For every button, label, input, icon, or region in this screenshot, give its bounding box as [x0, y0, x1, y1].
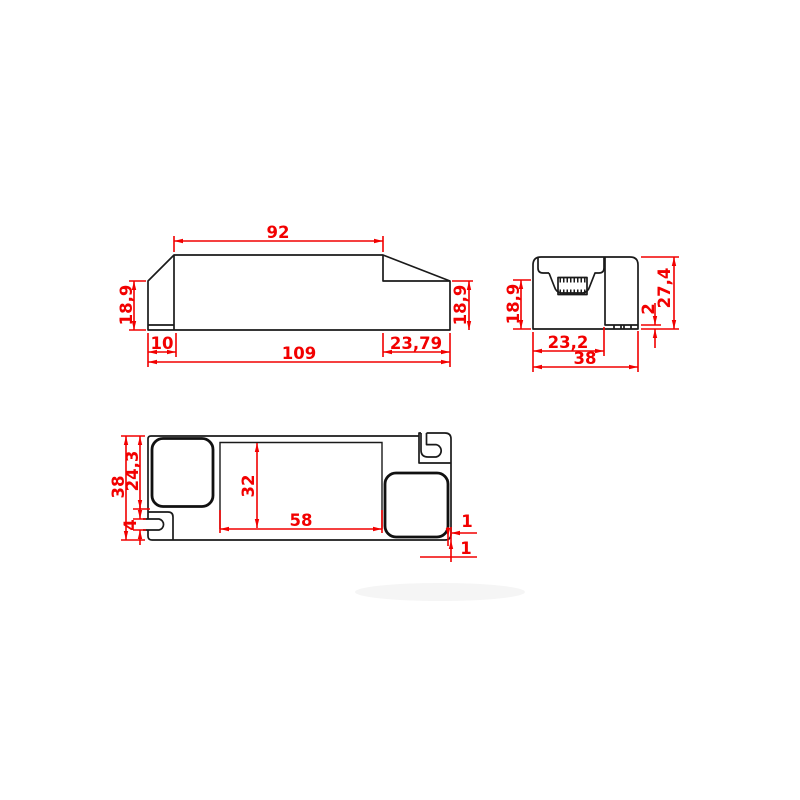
dim-left-tab: 10 — [148, 333, 176, 357]
side-view: 92 109 10 23,79 18,9 — [117, 223, 473, 367]
terminal-cover-left — [152, 439, 213, 507]
dim-label-18-9-right: 18,9 — [451, 285, 470, 326]
dim-label-10: 10 — [151, 334, 174, 353]
terminal-cover-right — [385, 473, 448, 537]
end-view: 18,9 23,2 38 27,4 2 — [504, 257, 679, 372]
dim-label-24-3: 24,3 — [123, 451, 142, 492]
end-view-outline — [533, 257, 638, 329]
dim-top-width: 92 — [174, 223, 383, 252]
side-view-outline — [148, 255, 450, 330]
dim-right-height: 18,9 — [451, 281, 473, 330]
dim-right-step: 23,79 — [383, 333, 450, 357]
paper-smudge — [355, 583, 525, 601]
dim-label-92: 92 — [267, 223, 290, 242]
dim-slot-width: 4 — [121, 506, 146, 545]
dim-window-width: 58 — [220, 510, 382, 533]
dim-foot-height: 2 — [639, 303, 661, 348]
dim-label-2: 2 — [639, 303, 658, 314]
dim-label-27-4: 27,4 — [655, 268, 674, 309]
dim-label-1-bottom: 1 — [460, 539, 471, 558]
dim-label-38-end: 38 — [574, 349, 597, 368]
dim-label-58: 58 — [290, 511, 313, 530]
dim-label-32: 32 — [239, 475, 258, 498]
enclosure-drawing: 92 109 10 23,79 18,9 — [0, 0, 800, 800]
cable-clamp-teeth — [558, 278, 587, 295]
dim-label-18-9-left: 18,9 — [117, 285, 136, 326]
dim-window-height: 32 — [239, 443, 259, 528]
dim-label-109: 109 — [282, 344, 316, 363]
dim-left-height: 18,9 — [117, 281, 146, 330]
dim-face-height: 18,9 — [504, 280, 531, 329]
dim-label-23-79: 23,79 — [390, 334, 442, 353]
plan-view: 38 24,3 4 32 58 1 — [109, 433, 477, 562]
dim-overall-height: 27,4 — [641, 257, 679, 329]
technical-drawing-canvas: 92 109 10 23,79 18,9 — [0, 0, 800, 800]
dim-label-4: 4 — [121, 519, 140, 530]
dim-label-18-9-end: 18,9 — [504, 284, 523, 325]
dim-label-1-right: 1 — [461, 512, 472, 531]
